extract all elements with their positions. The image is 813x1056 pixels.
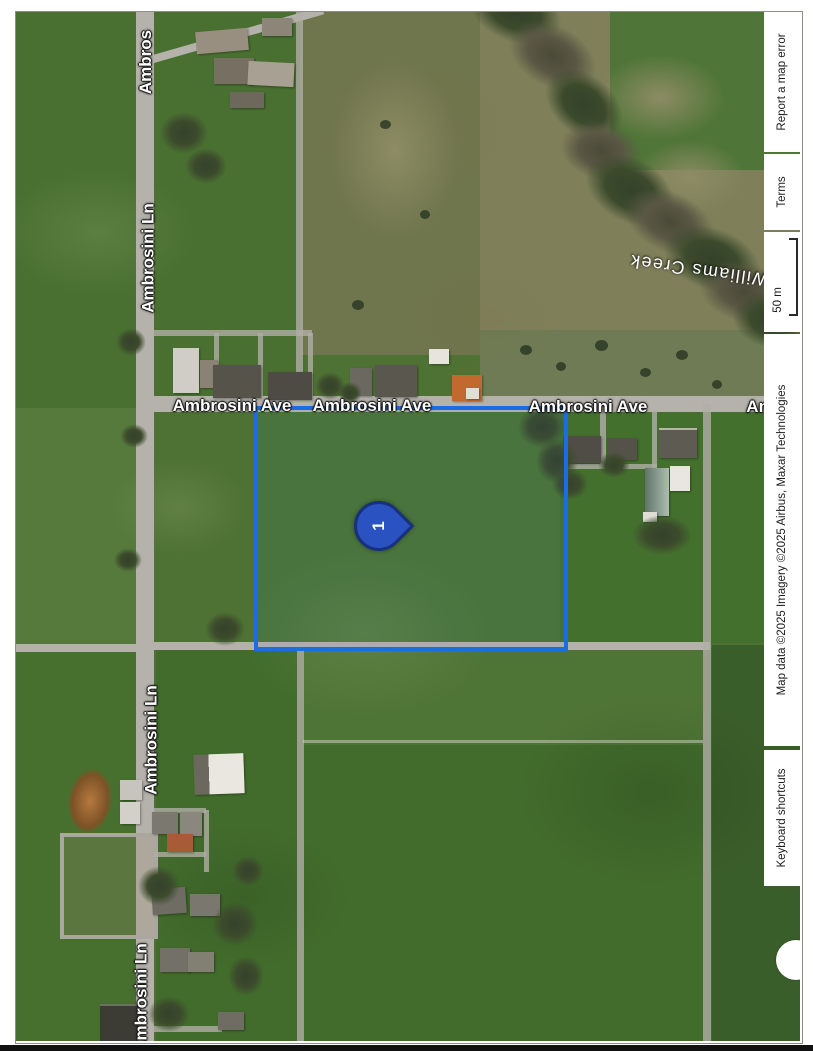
tree bbox=[228, 956, 264, 996]
building bbox=[429, 349, 449, 364]
barn bbox=[193, 753, 244, 795]
road-label-ambrosini-ln: Ambrosini Ln bbox=[139, 191, 159, 326]
building bbox=[247, 61, 294, 87]
building-orange-roof bbox=[167, 834, 193, 852]
building bbox=[195, 28, 249, 54]
building bbox=[375, 365, 417, 397]
building bbox=[160, 948, 190, 972]
tree bbox=[138, 866, 180, 906]
tree bbox=[632, 515, 692, 555]
building bbox=[466, 388, 479, 399]
driveway bbox=[154, 330, 312, 336]
barn bbox=[645, 468, 669, 516]
scale-bar-icon bbox=[789, 238, 798, 316]
bush bbox=[676, 350, 688, 360]
road-label-ambrosini-ave: Ambrosini Ave bbox=[167, 396, 297, 416]
building bbox=[180, 812, 202, 836]
report-map-error-link[interactable]: Report a map error bbox=[764, 12, 800, 152]
building bbox=[262, 18, 292, 36]
map-data-label: Map data ©2025 Imagery ©2025 Airbus, Max… bbox=[776, 385, 788, 696]
road-label-ambrosini-ave: Ambrosini Ave bbox=[306, 396, 438, 416]
map-data-attribution: Map data ©2025 Imagery ©2025 Airbus, Max… bbox=[764, 334, 800, 746]
page-margin bbox=[800, 0, 813, 1056]
tree bbox=[598, 452, 630, 478]
building bbox=[120, 780, 142, 800]
bush bbox=[520, 345, 532, 355]
farm-track bbox=[297, 648, 304, 1041]
driveway bbox=[204, 810, 209, 872]
building bbox=[120, 802, 140, 824]
tree bbox=[114, 548, 142, 572]
bush bbox=[380, 120, 391, 129]
bush bbox=[595, 340, 608, 351]
tree bbox=[212, 902, 258, 946]
farm-track bbox=[0, 644, 136, 652]
keyboard-shortcuts-link[interactable]: Keyboard shortcuts bbox=[764, 750, 800, 886]
grass-patch bbox=[330, 60, 460, 240]
tree bbox=[120, 424, 148, 448]
page-margin bbox=[0, 0, 813, 12]
building bbox=[173, 348, 199, 393]
terms-label: Terms bbox=[776, 176, 788, 207]
building bbox=[152, 812, 178, 834]
bush bbox=[556, 362, 566, 371]
building bbox=[670, 466, 690, 491]
building bbox=[213, 365, 261, 398]
field-patch bbox=[0, 408, 140, 653]
satellite-map[interactable]: 1 Ambros Ambrosini Ln Ambrosini Ln Ambro… bbox=[0, 0, 813, 1056]
tree bbox=[148, 996, 190, 1032]
building bbox=[230, 92, 264, 108]
road-label-ambrosini-ln: Ambrosini Ln bbox=[142, 673, 162, 808]
road-label-ambrosini-ave: Ambrosini Ave bbox=[522, 397, 654, 417]
tree bbox=[232, 856, 264, 886]
building bbox=[218, 1012, 244, 1030]
farm-track bbox=[303, 740, 703, 743]
keyboard-shortcuts-label: Keyboard shortcuts bbox=[776, 768, 788, 867]
terms-link[interactable]: Terms bbox=[764, 154, 800, 230]
scale-label: 50 m bbox=[772, 287, 784, 313]
farm-track bbox=[703, 404, 711, 1041]
field-patch bbox=[303, 650, 703, 745]
farm-track bbox=[296, 0, 303, 396]
pin-label: 1 bbox=[357, 504, 401, 548]
road-label-ambrosini-ln: Ambrosini Ln bbox=[132, 931, 152, 1056]
page-margin bbox=[0, 0, 16, 1056]
bush bbox=[420, 210, 430, 219]
tree bbox=[116, 328, 146, 356]
road-label-ambros: Ambros bbox=[136, 17, 156, 107]
tree bbox=[185, 148, 227, 184]
scanned-page: 1 Ambros Ambrosini Ln Ambrosini Ln Ambro… bbox=[0, 0, 813, 1056]
building bbox=[188, 952, 214, 972]
building bbox=[659, 428, 697, 458]
page-rule bbox=[0, 1045, 813, 1051]
bush bbox=[712, 380, 722, 389]
bush bbox=[352, 300, 364, 310]
bush bbox=[640, 368, 651, 377]
tree bbox=[205, 612, 245, 646]
report-map-error-label: Report a map error bbox=[776, 33, 788, 130]
driveway bbox=[154, 852, 206, 857]
